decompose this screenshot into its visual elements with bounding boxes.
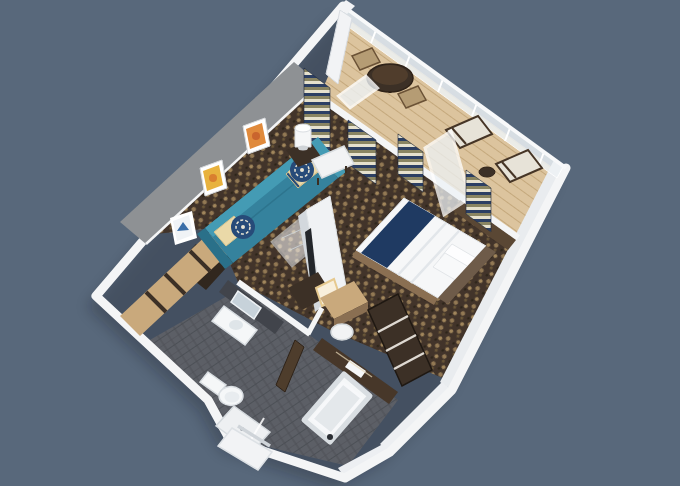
floorplan-render xyxy=(0,0,680,486)
tub-faucet xyxy=(327,434,333,440)
pillow-pattern-dot xyxy=(241,225,245,229)
art-motif xyxy=(252,132,260,140)
bistro-table-top xyxy=(372,65,408,85)
toilet-seat xyxy=(225,392,240,403)
art-motif xyxy=(209,174,217,182)
sink-basin xyxy=(229,320,243,330)
lamp-base xyxy=(298,146,308,151)
lamp-shade-top xyxy=(295,124,311,132)
stool xyxy=(331,324,353,340)
lounge-side-table xyxy=(479,167,495,177)
pillow-pattern-dot xyxy=(300,168,304,172)
navy-pattern-pillow-left xyxy=(231,215,255,239)
